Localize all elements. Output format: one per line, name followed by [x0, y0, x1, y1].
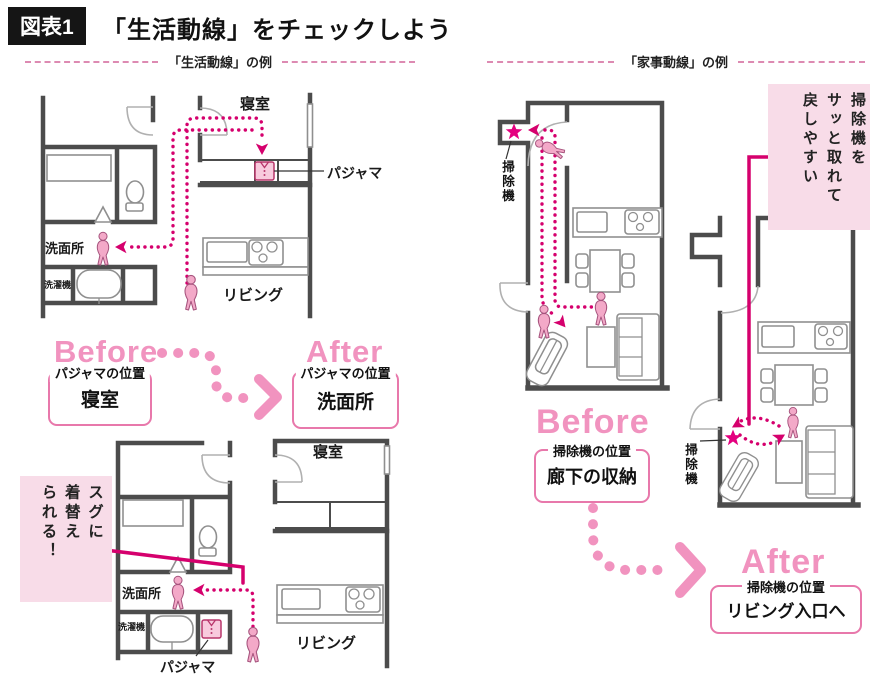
before-label-housework: Before — [536, 403, 650, 442]
box-caption: 掃除機の位置 — [548, 441, 636, 460]
person-cleaning-icon — [538, 305, 549, 338]
person-living-icon — [247, 627, 259, 662]
window-icon — [385, 446, 390, 474]
section-heading-housework: 「家事動線」の例 — [487, 52, 865, 71]
vacuum-location-after-box: 掃除機の位置 リビング入口へ — [710, 585, 862, 634]
floorplan-housework-before — [500, 103, 667, 388]
kitchen-counter — [758, 322, 850, 353]
annotation-change-quickly: スグに 着替え られる！ — [20, 476, 112, 602]
pajama-location-after-box: パジャマの位置 洗面所 — [292, 371, 399, 429]
room-label-washroom: 洗面所 — [122, 583, 161, 602]
sofa-icon — [806, 426, 853, 498]
before-after-arrow-housework — [593, 508, 701, 593]
dash-line — [25, 61, 158, 63]
item-label-vacuum: 掃除機 — [498, 160, 517, 210]
toilet-icon — [199, 526, 217, 556]
box-caption: パジャマの位置 — [50, 363, 150, 382]
vacuum-location-before-box: 掃除機の位置 廊下の収納 — [534, 449, 650, 503]
figure-tag: 図表1 — [8, 7, 86, 45]
person-living-icon — [595, 292, 606, 325]
box-caption: パジャマの位置 — [295, 363, 395, 382]
kitchen-counter — [573, 208, 662, 237]
item-label-washer: 洗濯機 — [118, 620, 145, 633]
room-label-living: リビング — [223, 284, 283, 305]
bathtub-icon — [77, 270, 121, 304]
before-after-arrow-life — [162, 353, 277, 415]
kitchen-counter — [203, 238, 308, 275]
annotation-vacuum-easy: 掃除機を サッと取れて 戻しやすい — [768, 84, 870, 230]
box-value: 洗面所 — [317, 387, 374, 414]
dash-line — [282, 61, 415, 63]
dining-set — [761, 365, 827, 405]
dresser — [47, 155, 111, 181]
room-label-bedroom: 寝室 — [313, 441, 343, 462]
dining-set — [576, 250, 634, 292]
sofa-icon — [617, 314, 659, 380]
vacuum-cleaner-icon — [717, 450, 761, 504]
section-heading-housework-label: 「家事動線」の例 — [624, 52, 728, 71]
flow-loop-bottom — [740, 435, 776, 444]
person-washroom-icon — [97, 232, 108, 265]
dash-line — [738, 61, 865, 63]
room-label-bedroom: 寝室 — [240, 93, 270, 114]
toilet-icon — [126, 181, 144, 211]
room-label-washroom: 洗面所 — [45, 238, 84, 257]
person-living-icon — [788, 407, 799, 437]
box-caption: 掃除機の位置 — [742, 577, 830, 596]
page-title: 「生活動線」をチェックしよう — [102, 10, 452, 45]
room-label-living: リビング — [296, 632, 356, 653]
kitchen-counter — [277, 585, 383, 623]
item-label-vacuum: 掃除機 — [681, 443, 700, 493]
pajama-shirt-icon — [202, 620, 221, 638]
item-label-washer: 洗濯機 — [44, 278, 71, 291]
bathtub-icon — [151, 616, 193, 650]
item-label-pajama: パジャマ — [160, 657, 215, 677]
coffee-table — [587, 327, 615, 367]
pajama-location-before-box: パジャマの位置 寝室 — [48, 371, 152, 426]
section-heading-life-label: 「生活動線」の例 — [168, 52, 272, 71]
item-label-pajama: パジャマ — [327, 163, 382, 183]
floorplan-life-before — [43, 95, 324, 316]
box-value: リビング入口へ — [727, 597, 846, 622]
box-value: 廊下の収納 — [547, 463, 637, 489]
section-heading-life: 「生活動線」の例 — [25, 52, 415, 71]
window-icon — [308, 104, 313, 147]
vacuum-spot-star — [506, 124, 523, 140]
dresser — [123, 500, 183, 526]
infographic-life-flow-lines: 図表1 「生活動線」をチェックしよう 「生活動線」の例 「家事動線」の例 寝室 … — [0, 0, 870, 677]
person-washroom-icon — [172, 576, 183, 609]
box-value: 寝室 — [81, 385, 119, 412]
folding-door-icon — [95, 207, 111, 222]
pajama-shirt-icon — [255, 162, 274, 180]
person-living-icon — [185, 275, 197, 310]
coffee-table — [776, 441, 802, 483]
vacuum-spot-star — [725, 430, 742, 446]
dash-line — [487, 61, 614, 63]
person-reaching-icon — [534, 137, 566, 159]
flow-loop-top — [741, 418, 779, 426]
